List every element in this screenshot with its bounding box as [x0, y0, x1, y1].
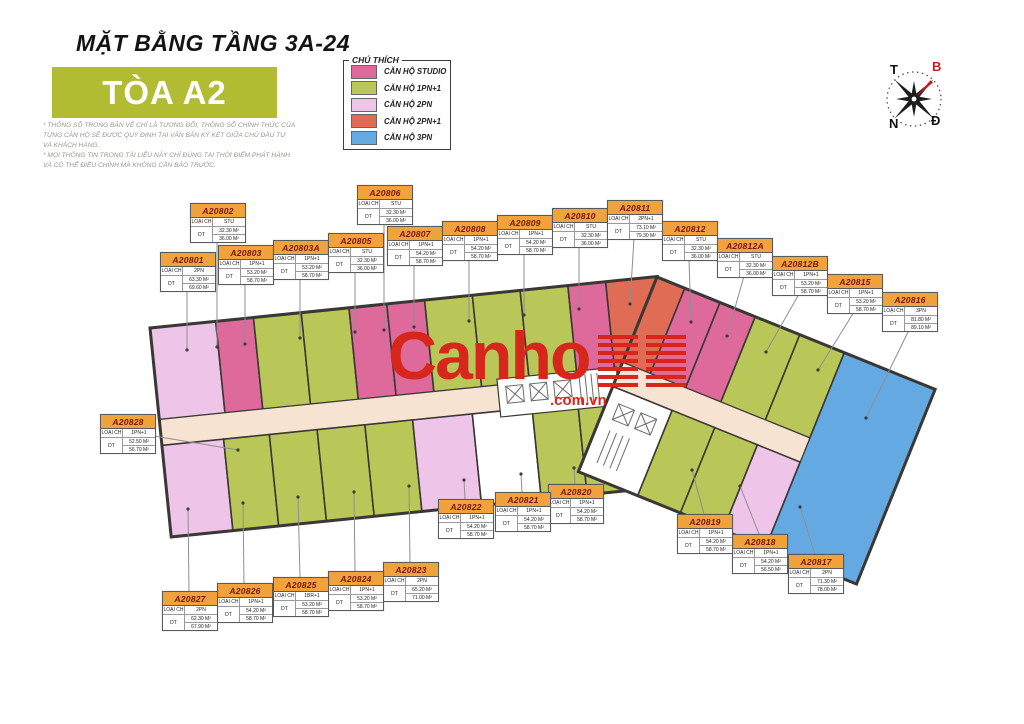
unit-type-field-label: LOẠI CH: [789, 569, 810, 577]
tower-name: TÒA A2: [102, 74, 227, 112]
unit-area-value-1: 53.20 M²: [295, 600, 328, 608]
unit-callout-A20808: A20808 LOẠI CH 1PN+1 DT 54.20 M² 58.70 M…: [442, 221, 498, 261]
legend-items: CĂN HỘ STUDIO CĂN HỘ 1PN+1 CĂN HỘ 2PN CĂ…: [344, 66, 450, 144]
unit-area-value-1: 54.20 M²: [570, 507, 603, 515]
unit-code: A20820: [549, 485, 603, 499]
unit-area-value-1: 54.20 M²: [517, 515, 550, 523]
unit-area-value-2: 36.00 M²: [379, 216, 412, 224]
unit-area-value-2: 58.70 M²: [350, 602, 383, 610]
unit-callout-A20803: A20803 LOẠI CH 1PN+1 DT 53.20 M² 58.70 M…: [218, 245, 274, 285]
unit-area-value-1: 54.20 M²: [699, 537, 732, 545]
unit-area-field-label: DT: [663, 244, 684, 260]
unit-area-value-2: 58.70 M²: [794, 287, 827, 295]
unit-callout-A20820: A20820 LOẠI CH 1PN+1 DT 54.20 M² 58.70 M…: [548, 484, 604, 524]
unit-type-field-label: LOẠI CH: [443, 236, 464, 244]
unit-area-value-2: 58.70 M²: [295, 271, 328, 279]
unit-type-field-label: LOẠI CH: [384, 577, 405, 585]
unit-type-value: STU: [739, 253, 772, 261]
unit-type-field-label: LOẠI CH: [663, 236, 684, 244]
unit-type-value: 1PN+1: [570, 499, 603, 507]
unit-type-field-label: LOẠI CH: [608, 215, 629, 223]
unit-area-value-2: 58.70 M²: [517, 523, 550, 531]
unit-area-field-label: DT: [883, 315, 904, 331]
unit-type-value: STU: [379, 200, 412, 208]
unit-area-value-2: 58.70 M²: [409, 257, 442, 265]
unit-type-value: 1PN+1: [794, 271, 827, 279]
unit-area-A20827: [162, 439, 233, 537]
unit-code: A20807: [388, 227, 442, 241]
unit-type-field-label: LOẠI CH: [274, 592, 295, 600]
unit-area-value-2: 58.70 M²: [239, 614, 272, 622]
unit-code: A20805: [329, 234, 383, 248]
unit-type-field-label: LOẠI CH: [553, 223, 574, 231]
unit-area-value-1: 81.80 M²: [904, 315, 937, 323]
unit-callout-A20812: A20812 LOẠI CH STU DT 32.30 M² 36.00 M²: [662, 221, 718, 261]
legend-item-label: CĂN HỘ 2PN: [384, 100, 432, 109]
watermark-logo-block-1: [598, 335, 638, 387]
unit-area-field-label: DT: [101, 437, 122, 453]
unit-type-value: 2PN: [184, 606, 217, 614]
unit-area-value-2: 58.70 M²: [464, 252, 497, 260]
unit-area-field-label: DT: [388, 249, 409, 265]
unit-area-value-2: 58.70 M²: [699, 545, 732, 553]
legend-item-label: CĂN HỘ 2PN+1: [384, 117, 441, 126]
unit-callout-A20819: A20819 LOẠI CH 1PN+1 DT 54.20 M² 58.70 M…: [677, 514, 733, 554]
unit-area-A20801: [150, 321, 225, 419]
unit-area-value-1: 63.30 M²: [182, 275, 215, 283]
unit-type-value: 1PN+1: [517, 507, 550, 515]
unit-type-value: 2PN+1: [629, 215, 662, 223]
legend-item: CĂN HỘ 2PN+1: [351, 115, 450, 127]
unit-area-field-label: DT: [608, 223, 629, 239]
unit-callout-A20809: A20809 LOẠI CH 1PN+1 DT 54.20 M² 58.70 M…: [497, 215, 553, 255]
unit-type-value: 1PN+1: [240, 260, 273, 268]
unit-area-field-label: DT: [439, 522, 460, 538]
unit-callout-A20822: A20822 LOẠI CH 1PN+1 DT 54.20 M² 58.70 M…: [438, 499, 494, 539]
unit-callout-A20801: A20801 LOẠI CH 2PN DT 63.30 M² 69.60 M²: [160, 252, 216, 292]
legend-title: CHÚ THÍCH: [349, 55, 402, 65]
unit-callout-A20817: A20817 LOẠI CH 2PN DT 71.30 M² 78.00 M²: [788, 554, 844, 594]
unit-callout-A20827: A20827 LOẠI CH 2PN DT 62.30 M² 67.90 M²: [162, 591, 218, 631]
unit-type-value: 1PN+1: [295, 255, 328, 263]
compass-label-south: N: [889, 116, 898, 131]
unit-callout-A20828: A20828 LOẠI CH 1PN+1 DT 52.50 M² 56.70 M…: [100, 414, 156, 454]
unit-callout-A20811: A20811 LOẠI CH 2PN+1 DT 73.10 M² 79.30 M…: [607, 200, 663, 240]
legend-item-label: CĂN HỘ 1PN+1: [384, 84, 441, 93]
unit-area-value-1: 62.30 M²: [184, 614, 217, 622]
unit-area-field-label: DT: [274, 263, 295, 279]
unit-area-value-1: 32.30 M²: [379, 208, 412, 216]
legend-item-label: CĂN HỘ STUDIO: [384, 67, 446, 76]
unit-area-value-1: 54.20 M²: [464, 244, 497, 252]
unit-area-field-label: DT: [828, 297, 849, 313]
unit-callout-A20807: A20807 LOẠI CH 1PN+1 DT 54.20 M² 58.70 M…: [387, 226, 443, 266]
unit-area-field-label: DT: [384, 585, 405, 601]
unit-code: A20812: [663, 222, 717, 236]
legend-color-swatch: [351, 81, 377, 95]
unit-type-value: 1PN+1: [122, 429, 155, 437]
legend-color-swatch: [351, 131, 377, 145]
unit-type-value: 1BR+1: [295, 592, 328, 600]
unit-area-value-1: 73.10 M²: [629, 223, 662, 231]
unit-area-field-label: DT: [274, 600, 295, 616]
unit-area-field-label: DT: [329, 256, 350, 272]
unit-callout-A20818: A20818 LOẠI CH 1PN+1 DT 54.20 M² 56.50 M…: [732, 534, 788, 574]
legend-item: CĂN HỘ 3PN: [351, 132, 450, 144]
unit-type-value: STU: [574, 223, 607, 231]
unit-type-value: 1PN+1: [699, 529, 732, 537]
unit-area-field-label: DT: [733, 557, 754, 573]
unit-type-value: 1PN+1: [754, 549, 787, 557]
unit-code: A20811: [608, 201, 662, 215]
unit-area-value-1: 32.30 M²: [574, 231, 607, 239]
disclaimer-text: * THÔNG SỐ TRONG BẢN VẼ CHỈ LÀ TƯƠNG ĐỐI…: [43, 121, 295, 170]
unit-code: A20827: [163, 592, 217, 606]
unit-code: A20817: [789, 555, 843, 569]
unit-area-field-label: DT: [678, 537, 699, 553]
legend-item-label: CĂN HỘ 3PN: [384, 133, 432, 142]
unit-callout-A20803A: A20803A LOẠI CH 1PN+1 DT 53.20 M² 58.70 …: [273, 240, 329, 280]
unit-type-field-label: LOẠI CH: [161, 267, 182, 275]
unit-area-value-1: 53.20 M²: [350, 594, 383, 602]
unit-area-value-2: 58.70 M²: [460, 530, 493, 538]
core-left-wing: [472, 408, 541, 506]
legend-color-swatch: [351, 65, 377, 79]
unit-area-field-label: DT: [496, 515, 517, 531]
unit-area-value-2: 58.70 M²: [519, 246, 552, 254]
compass-label-west: T: [890, 62, 898, 77]
unit-callout-A20815: A20815 LOẠI CH 1PN+1 DT 53.20 M² 58.70 M…: [827, 274, 883, 314]
unit-code: A20828: [101, 415, 155, 429]
unit-area-value-1: 32.30 M²: [212, 226, 245, 234]
unit-type-field-label: LOẠI CH: [388, 241, 409, 249]
unit-type-field-label: LOẠI CH: [498, 230, 519, 238]
unit-area-value-1: 32.30 M²: [739, 261, 772, 269]
unit-type-value: STU: [212, 218, 245, 226]
legend-item: CĂN HỘ 1PN+1: [351, 82, 450, 94]
unit-type-field-label: LOẠI CH: [101, 429, 122, 437]
unit-area-value-2: 36.00 M²: [574, 239, 607, 247]
watermark-logo-block-2: [646, 335, 686, 387]
unit-type-field-label: LOẠI CH: [219, 260, 240, 268]
unit-callout-A20821: A20821 LOẠI CH 1PN+1 DT 54.20 M² 58.70 M…: [495, 492, 551, 532]
unit-code: A20802: [191, 204, 245, 218]
unit-type-field-label: LOẠI CH: [718, 253, 739, 261]
unit-area-value-2: 36.00 M²: [739, 269, 772, 277]
unit-area-value-1: 32.30 M²: [684, 244, 717, 252]
unit-type-value: 1PN+1: [239, 598, 272, 606]
unit-area-field-label: DT: [789, 577, 810, 593]
unit-area-field-label: DT: [549, 507, 570, 523]
unit-code: A20816: [883, 293, 937, 307]
unit-type-field-label: LOẠI CH: [733, 549, 754, 557]
unit-area-value-1: 54.20 M²: [460, 522, 493, 530]
unit-area-value-1: 53.20 M²: [295, 263, 328, 271]
unit-code: A20809: [498, 216, 552, 230]
unit-callout-A20816: A20816 LOẠI CH 3PN DT 81.80 M² 89.10 M²: [882, 292, 938, 332]
watermark-brand: Canho: [388, 326, 590, 387]
unit-type-value: 1PN+1: [409, 241, 442, 249]
unit-area-field-label: DT: [161, 275, 182, 291]
page-title: MẶT BẰNG TẦNG 3A-24: [76, 30, 350, 57]
unit-area-value-1: 32.30 M²: [350, 256, 383, 264]
unit-callout-A20806: A20806 LOẠI CH STU DT 32.30 M² 36.00 M²: [357, 185, 413, 225]
unit-type-field-label: LOẠI CH: [883, 307, 904, 315]
unit-area-value-2: 71.00 M²: [405, 593, 438, 601]
unit-area-value-1: 65.20 M²: [405, 585, 438, 593]
unit-type-field-label: LOẠI CH: [218, 598, 239, 606]
unit-area-field-label: DT: [553, 231, 574, 247]
unit-code: A20819: [678, 515, 732, 529]
unit-code: A20822: [439, 500, 493, 514]
unit-type-field-label: LOẠI CH: [439, 514, 460, 522]
unit-area-value-2: 67.90 M²: [184, 622, 217, 630]
unit-area-value-2: 69.60 M²: [182, 283, 215, 291]
unit-code: A20825: [274, 578, 328, 592]
unit-callout-A20825: A20825 LOẠI CH 1BR+1 DT 53.20 M² 58.70 M…: [273, 577, 329, 617]
unit-area-value-2: 56.50 M²: [754, 565, 787, 573]
unit-callout-A20824: A20824 LOẠI CH 1PN+1 DT 53.20 M² 58.70 M…: [328, 571, 384, 611]
unit-area-field-label: DT: [218, 606, 239, 622]
unit-code: A20810: [553, 209, 607, 223]
unit-type-value: STU: [350, 248, 383, 256]
unit-type-field-label: LOẠI CH: [191, 218, 212, 226]
unit-type-value: 3PN: [904, 307, 937, 315]
unit-area-value-1: 54.20 M²: [519, 238, 552, 246]
floorplan-page: MẶT BẰNG TẦNG 3A-24 TÒA A2 * THÔNG SỐ TR…: [0, 0, 1024, 724]
compass-rose: T B N Đ: [868, 52, 960, 144]
unit-callout-A20802: A20802 LOẠI CH STU DT 32.30 M² 36.00 M²: [190, 203, 246, 243]
unit-type-value: 2PN: [182, 267, 215, 275]
unit-area-value-2: 58.70 M²: [849, 305, 882, 313]
unit-code: A20812B: [773, 257, 827, 271]
unit-area-field-label: DT: [163, 614, 184, 630]
legend: CHÚ THÍCH CĂN HỘ STUDIO CĂN HỘ 1PN+1 CĂN…: [343, 60, 451, 150]
unit-code: A20818: [733, 535, 787, 549]
unit-callout-A20810: A20810 LOẠI CH STU DT 32.30 M² 36.00 M²: [552, 208, 608, 248]
unit-code: A20806: [358, 186, 412, 200]
unit-area-field-label: DT: [498, 238, 519, 254]
compass-label-east: Đ: [931, 113, 940, 128]
unit-area-value-2: 56.70 M²: [122, 445, 155, 453]
unit-code: A20815: [828, 275, 882, 289]
unit-callout-A20812B: A20812B LOẠI CH 1PN+1 DT 53.20 M² 58.70 …: [772, 256, 828, 296]
unit-type-value: STU: [684, 236, 717, 244]
unit-code: A20803: [219, 246, 273, 260]
tower-name-box: TÒA A2: [52, 67, 277, 118]
unit-area-value-2: 79.30 M²: [629, 231, 662, 239]
unit-area-value-2: 58.70 M²: [240, 276, 273, 284]
unit-area-field-label: DT: [718, 261, 739, 277]
unit-code: A20823: [384, 563, 438, 577]
unit-area-value-2: 58.70 M²: [570, 515, 603, 523]
unit-type-field-label: LOẠI CH: [678, 529, 699, 537]
unit-type-field-label: LOẠI CH: [496, 507, 517, 515]
unit-area-field-label: DT: [773, 279, 794, 295]
unit-area-field-label: DT: [358, 208, 379, 224]
watermark-domain: .com.vn: [550, 392, 607, 409]
unit-code: A20803A: [274, 241, 328, 255]
unit-code: A20826: [218, 584, 272, 598]
unit-area-field-label: DT: [191, 226, 212, 242]
unit-type-field-label: LOẠI CH: [358, 200, 379, 208]
unit-type-value: 1PN+1: [350, 586, 383, 594]
unit-area-field-label: DT: [219, 268, 240, 284]
unit-area-A20823: [413, 414, 482, 512]
unit-code: A20824: [329, 572, 383, 586]
legend-item: CĂN HỘ 2PN: [351, 99, 450, 111]
legend-item: CĂN HỘ STUDIO: [351, 66, 450, 78]
unit-area-value-2: 89.10 M²: [904, 323, 937, 331]
unit-type-field-label: LOẠI CH: [828, 289, 849, 297]
unit-code: A20821: [496, 493, 550, 507]
unit-callout-A20826: A20826 LOẠI CH 1PN+1 DT 54.20 M² 58.70 M…: [217, 583, 273, 623]
unit-code: A20812A: [718, 239, 772, 253]
unit-callout-A20812A: A20812A LOẠI CH STU DT 32.30 M² 36.00 M²: [717, 238, 773, 278]
unit-area-value-2: 78.00 M²: [810, 585, 843, 593]
unit-code: A20808: [443, 222, 497, 236]
unit-area-value-1: 54.20 M²: [239, 606, 272, 614]
compass-label-north: B: [932, 59, 941, 74]
unit-area-value-1: 52.50 M²: [122, 437, 155, 445]
unit-type-field-label: LOẠI CH: [329, 248, 350, 256]
unit-area-value-1: 53.20 M²: [240, 268, 273, 276]
unit-type-field-label: LOẠI CH: [163, 606, 184, 614]
unit-type-field-label: LOẠI CH: [274, 255, 295, 263]
unit-type-value: 2PN: [405, 577, 438, 585]
unit-type-field-label: LOẠI CH: [549, 499, 570, 507]
unit-callout-A20823: A20823 LOẠI CH 2PN DT 65.20 M² 71.00 M²: [383, 562, 439, 602]
legend-color-swatch: [351, 114, 377, 128]
unit-area-field-label: DT: [329, 594, 350, 610]
unit-code: A20801: [161, 253, 215, 267]
unit-type-field-label: LOẠI CH: [329, 586, 350, 594]
unit-type-value: 1PN+1: [460, 514, 493, 522]
compass-star-graphic: [868, 52, 960, 144]
unit-area-value-1: 54.20 M²: [754, 557, 787, 565]
unit-area-value-1: 53.20 M²: [794, 279, 827, 287]
watermark: Canho .com.vn: [388, 326, 686, 387]
unit-type-field-label: LOẠI CH: [773, 271, 794, 279]
unit-type-value: 1PN+1: [464, 236, 497, 244]
unit-area-value-2: 36.00 M²: [684, 252, 717, 260]
disclaimer-line-2: * MỌI THÔNG TIN TRONG TÀI LIỆU NÀY CHỈ Đ…: [43, 151, 295, 171]
unit-area-value-1: 53.20 M²: [849, 297, 882, 305]
disclaimer-line-1: * THÔNG SỐ TRONG BẢN VẼ CHỈ LÀ TƯƠNG ĐỐI…: [43, 121, 295, 151]
unit-area-field-label: DT: [443, 244, 464, 260]
unit-type-value: 2PN: [810, 569, 843, 577]
legend-color-swatch: [351, 98, 377, 112]
unit-area-value-2: 36.00 M²: [212, 234, 245, 242]
unit-area-value-1: 54.20 M²: [409, 249, 442, 257]
unit-type-value: 1PN+1: [849, 289, 882, 297]
unit-area-value-2: 58.70 M²: [295, 608, 328, 616]
unit-type-value: 1PN+1: [519, 230, 552, 238]
unit-callout-A20805: A20805 LOẠI CH STU DT 32.30 M² 36.00 M²: [328, 233, 384, 273]
unit-area-value-2: 36.00 M²: [350, 264, 383, 272]
unit-area-value-1: 71.30 M²: [810, 577, 843, 585]
